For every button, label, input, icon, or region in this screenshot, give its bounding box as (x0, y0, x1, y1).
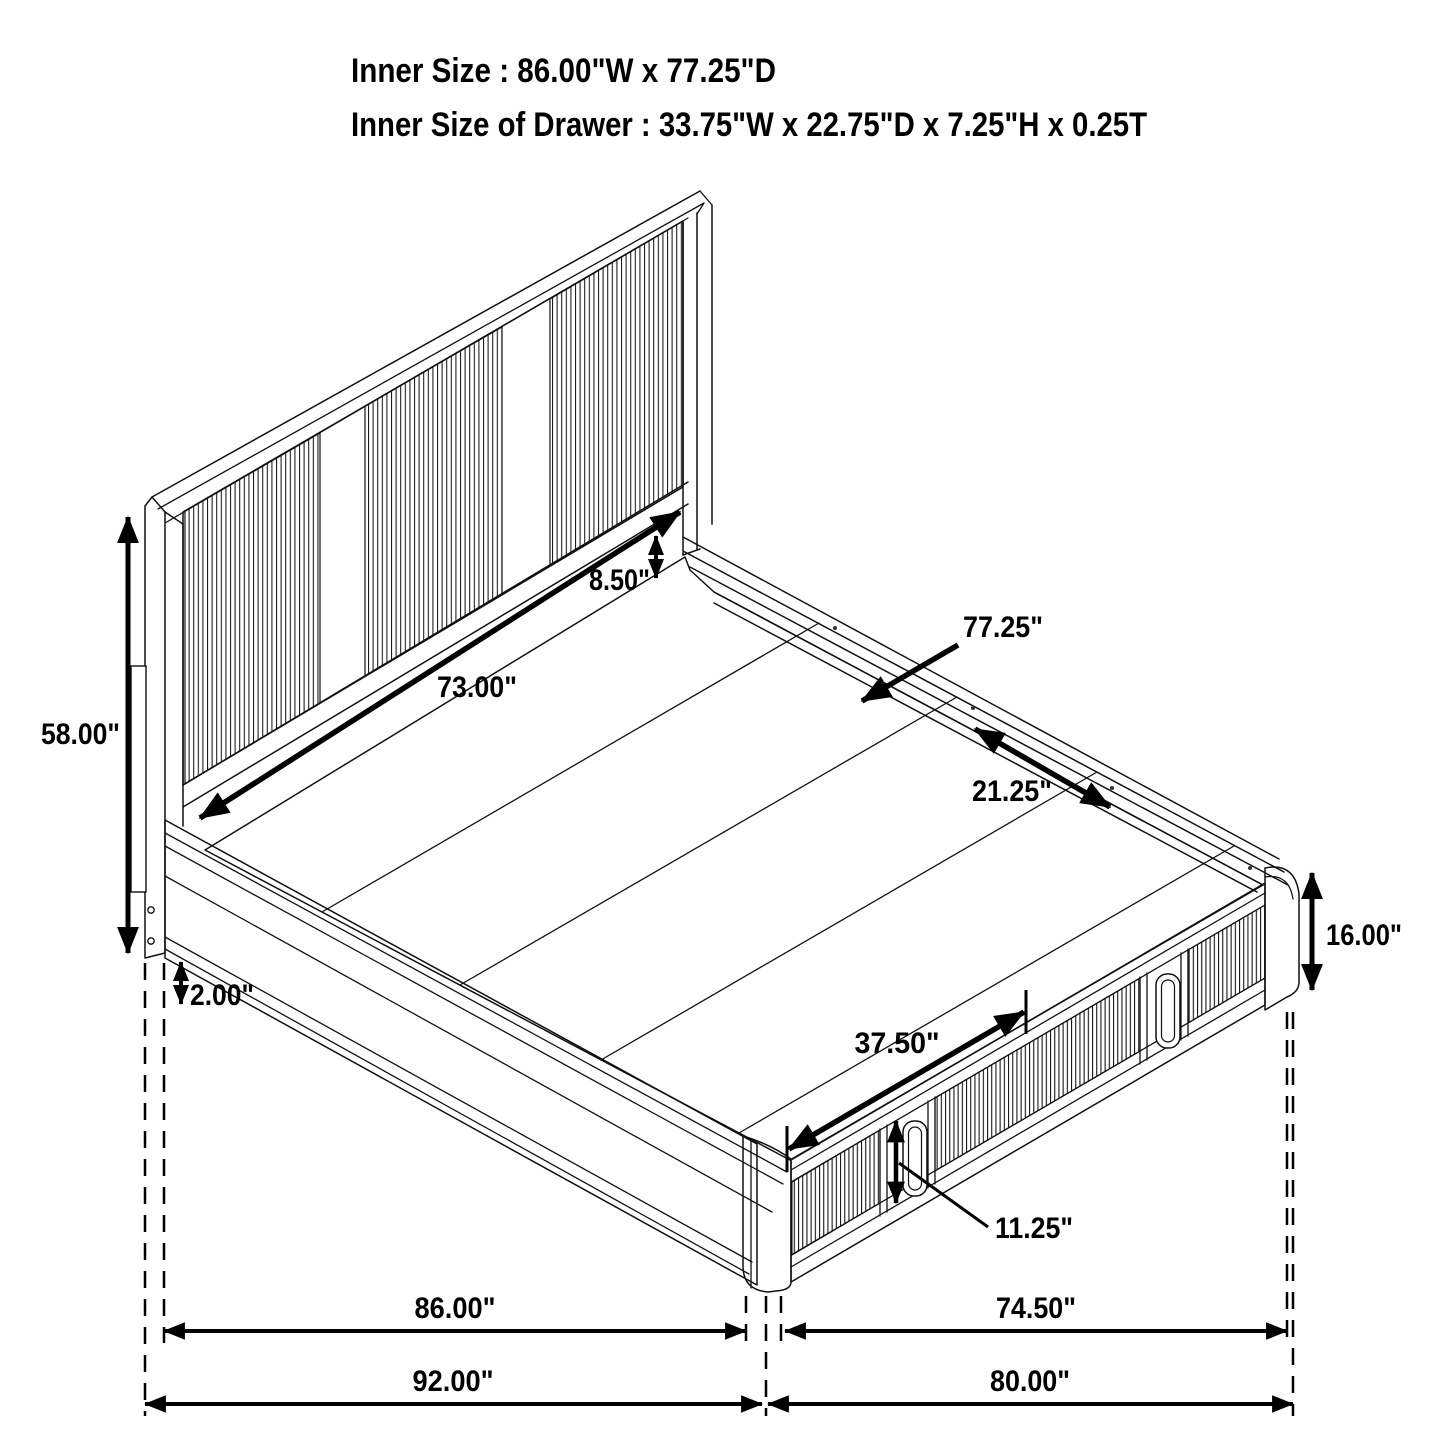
title-line-2: Inner Size of Drawer : 33.75"W x 22.75"D… (351, 106, 1147, 144)
title-block: Inner Size : 86.00"W x 77.25"D Inner Siz… (351, 52, 1147, 144)
dim-label-footside-inner-length: 74.50" (996, 1292, 1076, 1325)
drawer-front-ribbed-1 (792, 1130, 880, 1255)
dim-label-headboard-panel-gap: 8.50" (589, 564, 650, 597)
left-side-face (165, 820, 787, 1285)
leg-bolt-hole-1 (148, 907, 154, 913)
bed-dimension-diagram-page: 58.00" 2.00" 73.00" 8.50" 77.25" 21.25" … (0, 0, 1445, 1445)
dim-label-inner-depth: 77.25" (963, 611, 1043, 644)
deck-board-joint-2 (460, 697, 957, 985)
drawer-handle-1 (903, 1121, 927, 1196)
leg-bracket (131, 666, 146, 892)
rail-screw-hole (1248, 866, 1252, 870)
deck-board-joint-3 (601, 772, 1097, 1060)
dim-label-inner-width: 86.00" (415, 1292, 496, 1325)
arrow-inner-depth (862, 645, 958, 701)
dim-label-base-height: 16.00" (1326, 919, 1402, 952)
drawer-handle-2 (1156, 974, 1180, 1048)
title-line-1: Inner Size : 86.00"W x 77.25"D (351, 52, 776, 90)
rail-screw-hole (1110, 786, 1114, 790)
headboard-slat-panel-3 (550, 221, 683, 565)
deck-board-joint-1 (322, 623, 819, 912)
dim-label-overall-length: 80.00" (990, 1365, 1070, 1398)
dim-label-headboard-height: 58.00" (41, 718, 120, 751)
rail-screw-hole (971, 706, 975, 710)
drawer-front-ribbed-2 (935, 978, 1140, 1171)
corner-post-left (743, 1136, 791, 1292)
dim-label-drawer-front-width: 37.50" (855, 1027, 940, 1060)
headboard-slat-panel-1 (185, 433, 320, 784)
dim-label-overall-width: 92.00" (413, 1365, 494, 1398)
diagram-canvas: 58.00" 2.00" 73.00" 8.50" 77.25" 21.25" … (0, 0, 1445, 1445)
right-rail (683, 537, 1288, 892)
dim-label-headboard-inner-width: 73.00" (437, 671, 517, 704)
platform-drawing (165, 537, 1299, 1292)
dim-label-rail-board-width: 21.25" (972, 775, 1052, 808)
leg-bolt-hole-2 (148, 938, 154, 944)
corner-post-right (1265, 867, 1299, 1010)
headboard-slat-panel-2 (365, 327, 502, 676)
rail-screw-hole (833, 626, 837, 630)
dim-label-frame-bottom-gap: 2.00" (190, 979, 254, 1012)
dim-label-drawer-opening-height: 11.25" (995, 1212, 1073, 1245)
